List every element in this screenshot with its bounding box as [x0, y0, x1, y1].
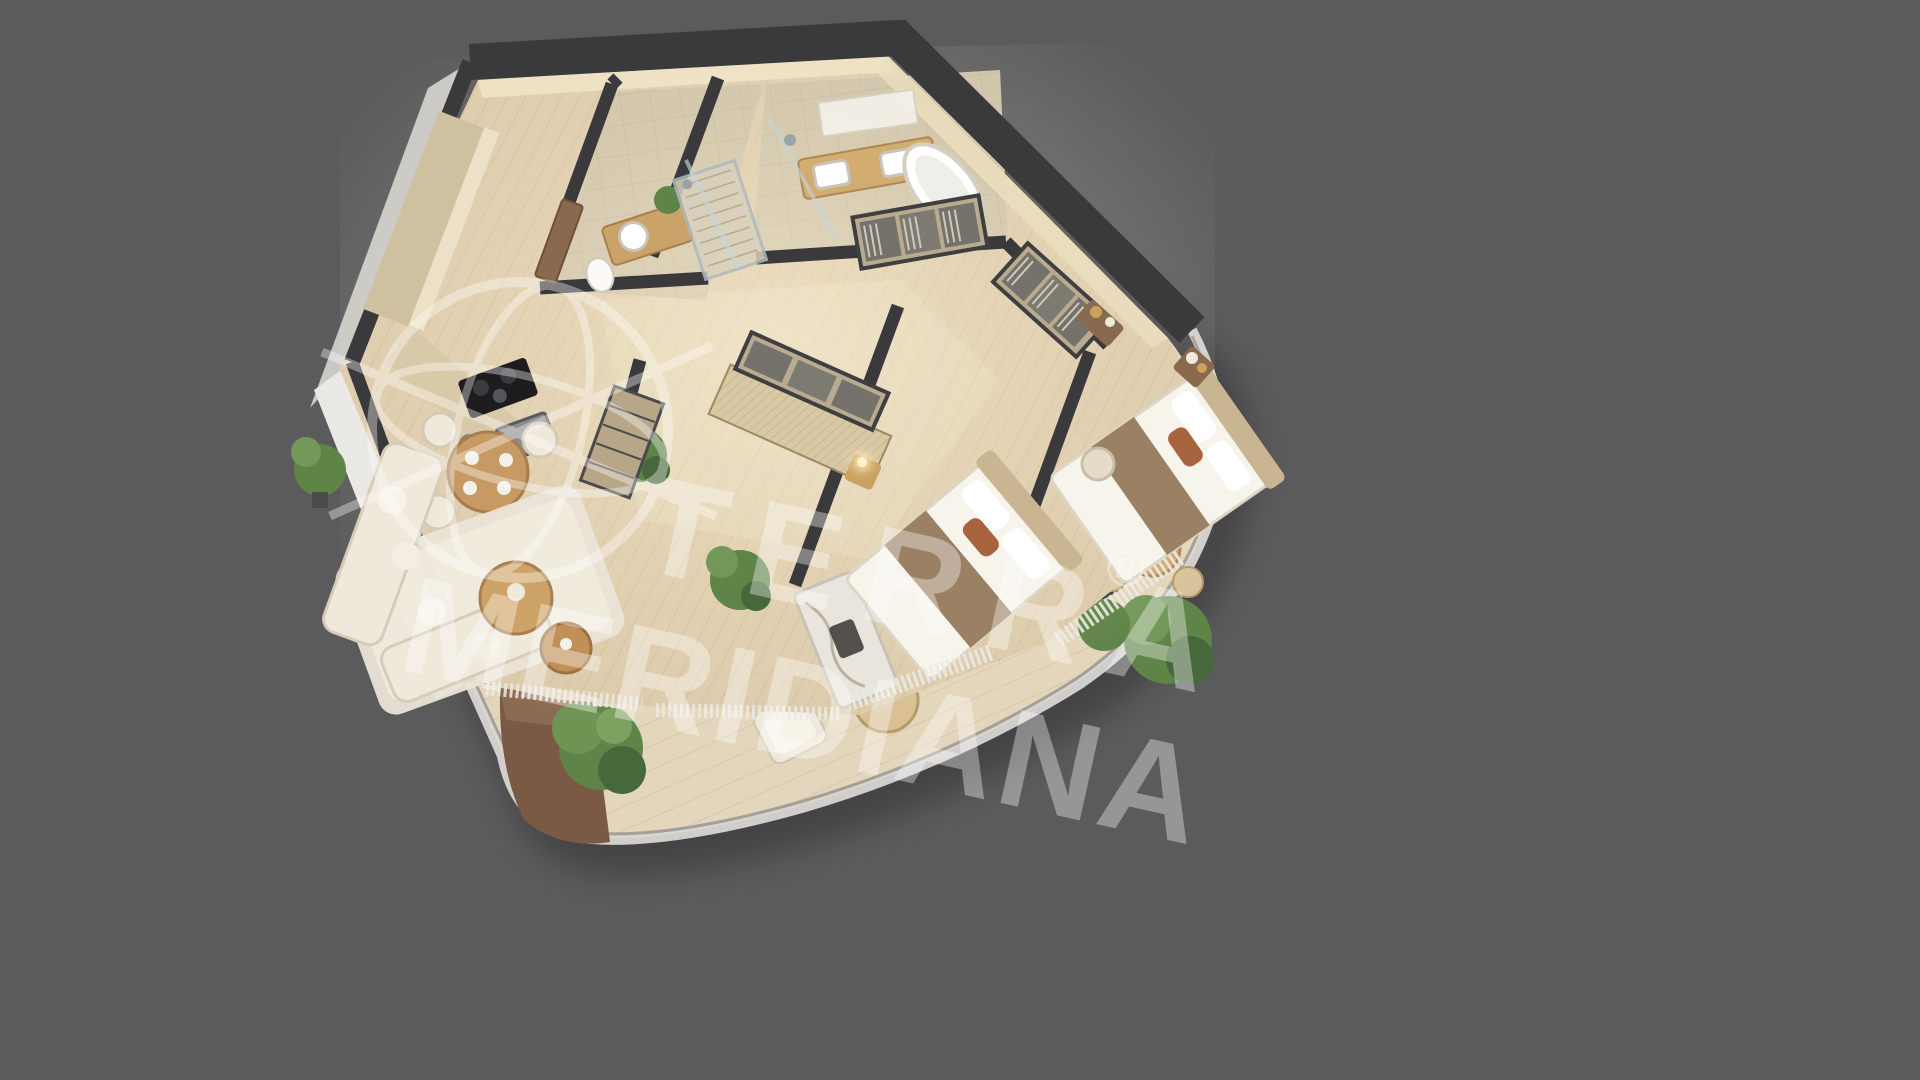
pouf — [1082, 448, 1114, 480]
place-setting — [499, 453, 513, 467]
place-setting — [463, 481, 477, 495]
sofa-cushion — [392, 542, 420, 570]
floor-plan-render: TERRA ® MERIDIANA — [0, 0, 1920, 1080]
living-hall-wall-stub — [612, 78, 618, 84]
rain-shower-head — [784, 134, 796, 146]
screenshot-canvas: TERRA ® MERIDIANA — [0, 0, 1920, 1080]
